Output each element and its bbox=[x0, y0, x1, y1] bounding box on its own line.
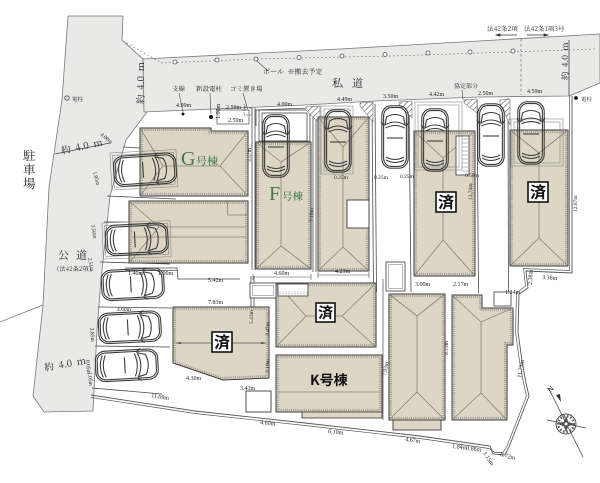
svg-text:2.50m: 2.50m bbox=[478, 91, 494, 97]
svg-text:0.25m: 0.25m bbox=[374, 175, 389, 181]
svg-text:2.38m: 2.38m bbox=[528, 269, 535, 285]
svg-text:2.59m: 2.59m bbox=[226, 105, 242, 111]
svg-text:4.49m: 4.49m bbox=[337, 97, 353, 103]
svg-text:3.50m: 3.50m bbox=[383, 94, 399, 100]
svg-text:4.23m: 4.23m bbox=[335, 269, 351, 275]
svg-text:1.24m: 1.24m bbox=[505, 290, 521, 296]
svg-text:3.00m: 3.00m bbox=[415, 282, 431, 288]
svg-text:13.74m: 13.74m bbox=[468, 183, 474, 200]
svg-text:7.83m: 7.83m bbox=[208, 300, 224, 306]
svg-text:G: G bbox=[181, 148, 195, 170]
svg-text:3.57m: 3.57m bbox=[247, 147, 253, 162]
svg-text:4.60m: 4.60m bbox=[274, 271, 290, 277]
svg-text:1.00m: 1.00m bbox=[216, 104, 222, 120]
svg-text:7.10m: 7.10m bbox=[309, 207, 315, 222]
svg-text:5.43m: 5.43m bbox=[249, 309, 255, 324]
svg-text:1.05m: 1.05m bbox=[86, 372, 93, 387]
svg-text:1.00m: 1.00m bbox=[158, 271, 174, 277]
svg-text:0.50m: 0.50m bbox=[465, 173, 480, 179]
svg-text:4.60m: 4.60m bbox=[117, 307, 132, 313]
svg-text:2.85m: 2.85m bbox=[88, 328, 95, 343]
svg-text:2.17m: 2.17m bbox=[453, 282, 469, 288]
svg-text:8.13m: 8.13m bbox=[444, 340, 450, 355]
svg-text:3.45m: 3.45m bbox=[265, 321, 272, 336]
svg-text:12.87m: 12.87m bbox=[573, 195, 579, 212]
svg-text:5.42m: 5.42m bbox=[208, 278, 224, 284]
svg-text:4.99m: 4.99m bbox=[176, 103, 192, 109]
svg-text:1.40m: 1.40m bbox=[128, 271, 144, 277]
svg-text:F: F bbox=[269, 183, 280, 205]
svg-text:3.38m: 3.38m bbox=[542, 275, 558, 282]
svg-text:0.25m: 0.25m bbox=[400, 174, 415, 180]
svg-text:2.59m: 2.59m bbox=[228, 118, 244, 124]
svg-text:4.42m: 4.42m bbox=[429, 92, 445, 98]
svg-text:2.19m: 2.19m bbox=[265, 358, 272, 373]
svg-text:0.25m: 0.25m bbox=[334, 175, 349, 181]
svg-text:4.30m: 4.30m bbox=[186, 376, 202, 382]
svg-text:4.59m: 4.59m bbox=[527, 89, 543, 95]
svg-text:3.43m: 3.43m bbox=[240, 386, 256, 392]
svg-text:4.00m: 4.00m bbox=[277, 102, 293, 108]
